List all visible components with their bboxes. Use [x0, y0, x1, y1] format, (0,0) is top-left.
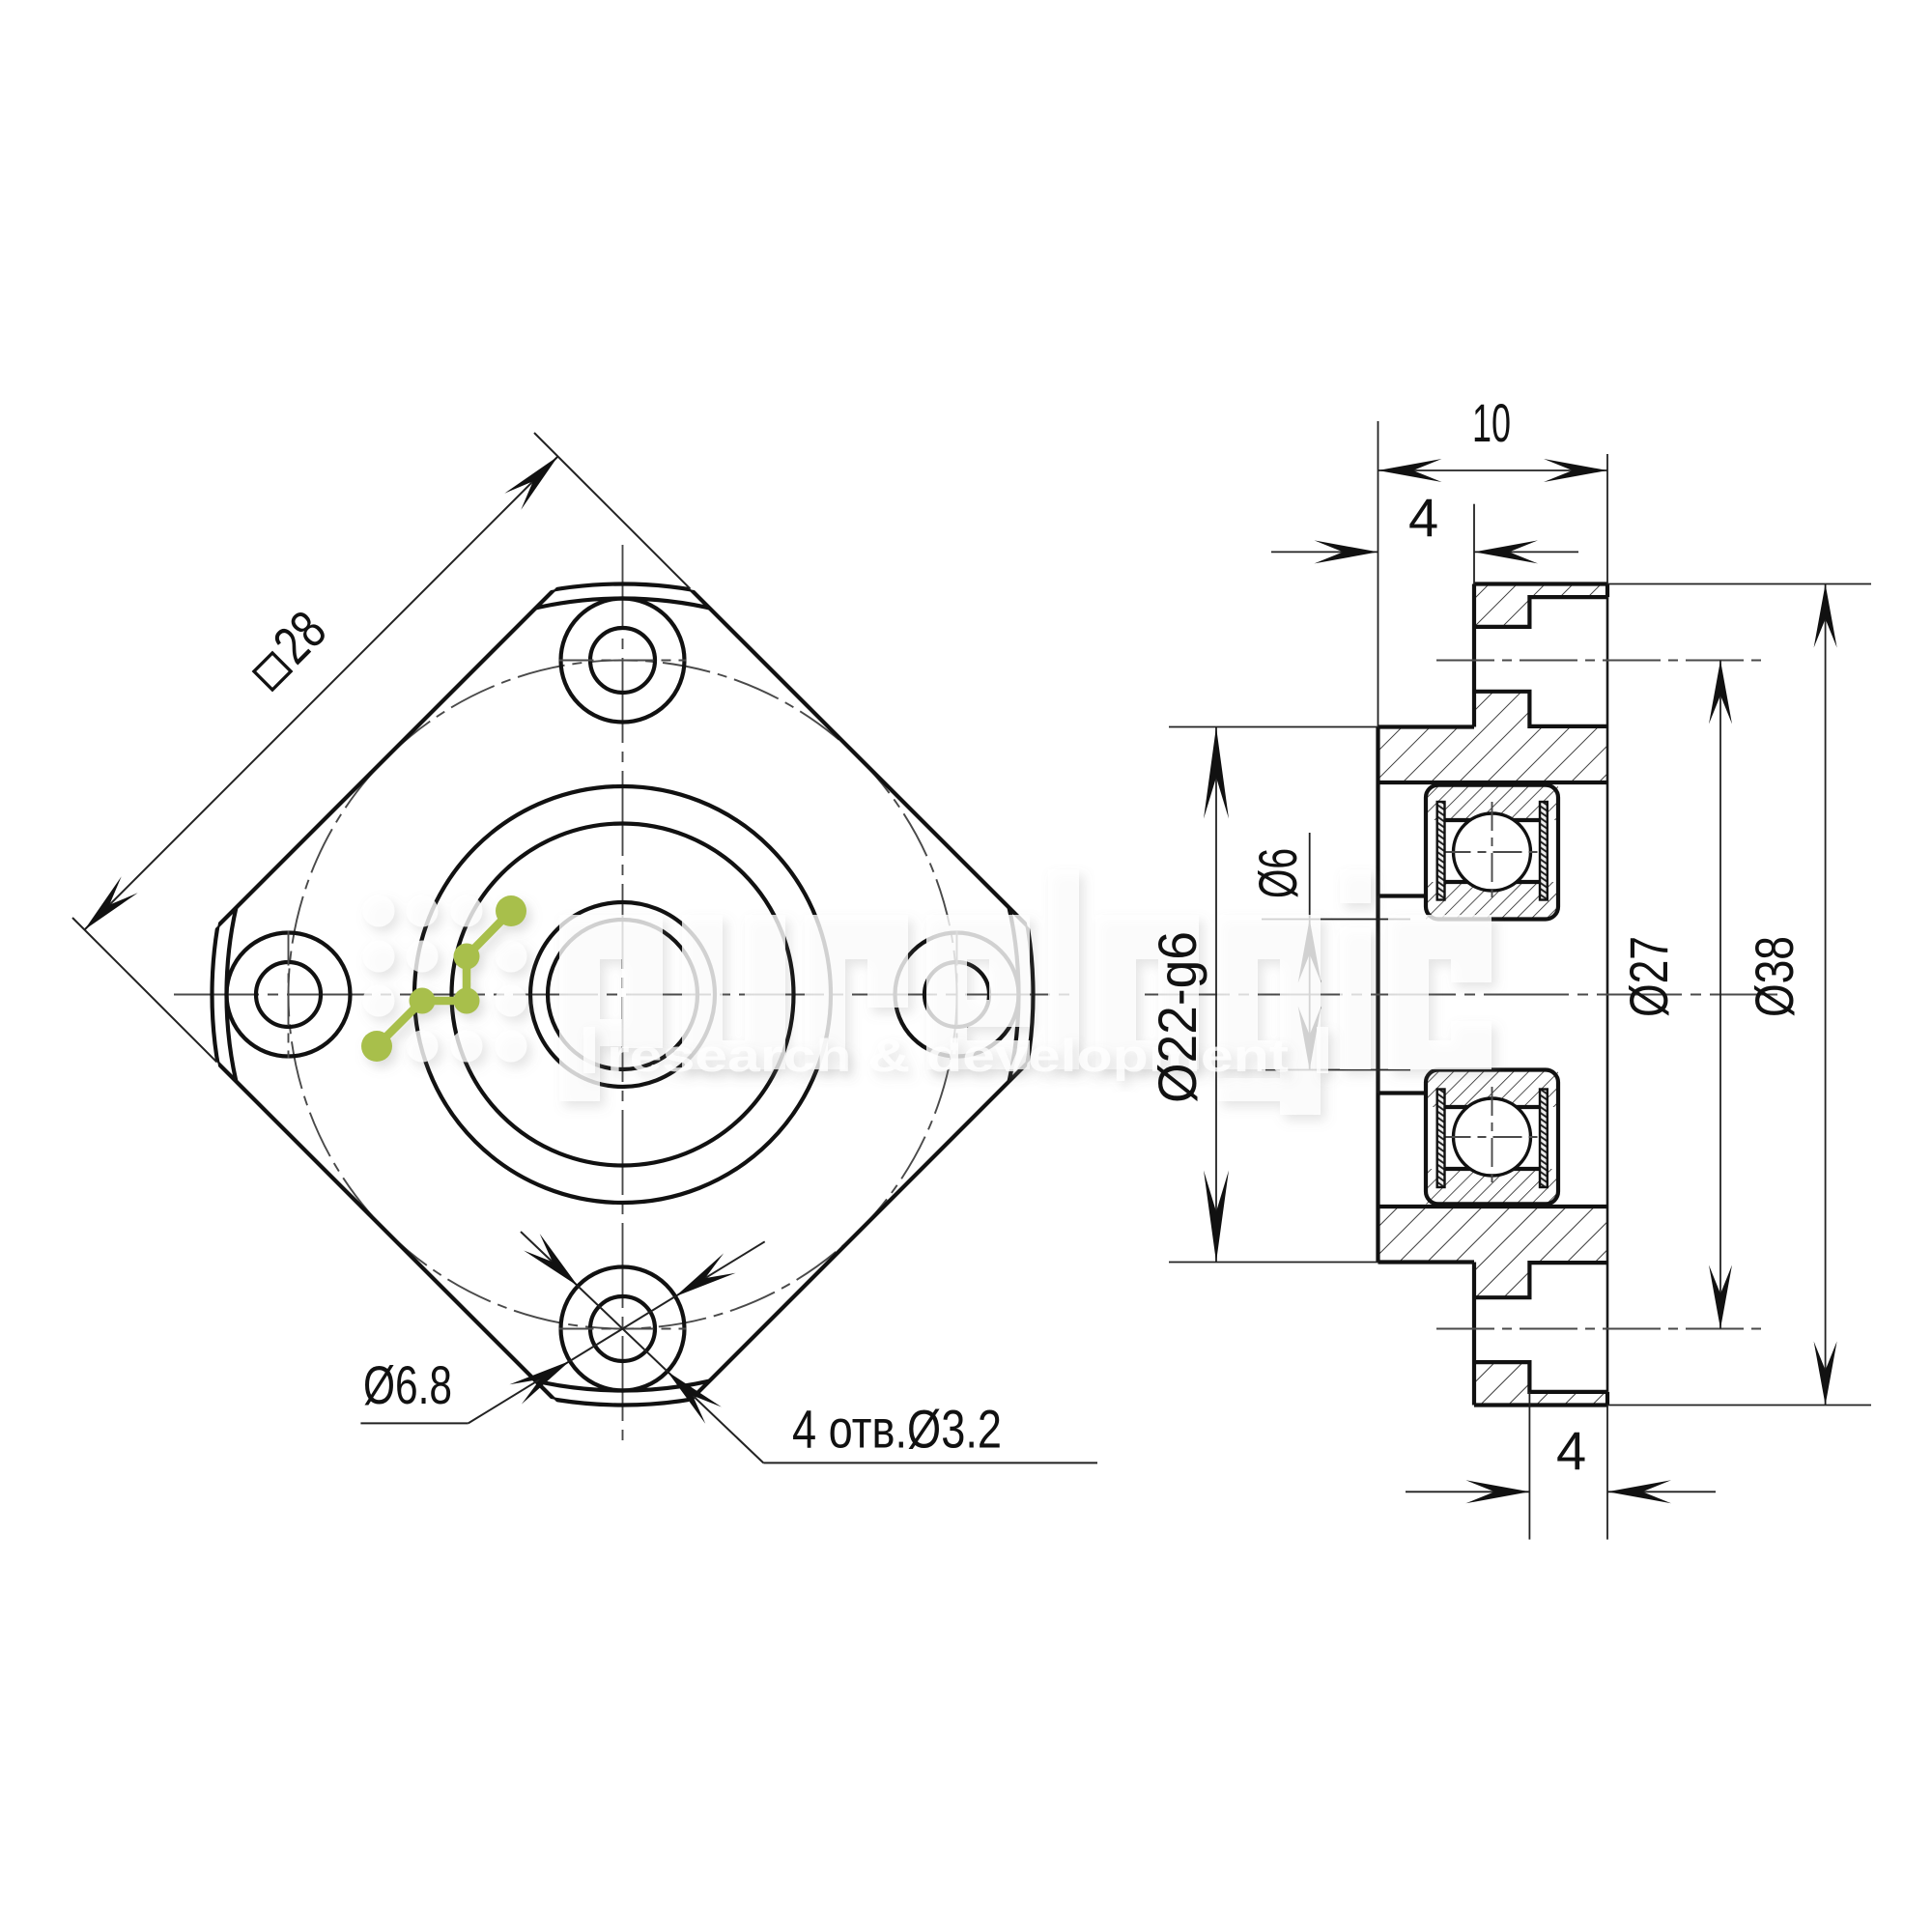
svg-text:10: 10 [1472, 392, 1511, 453]
svg-text:Ø27: Ø27 [1618, 936, 1679, 1017]
svg-text:Ø6.8: Ø6.8 [363, 1354, 452, 1415]
svg-text:Ø38: Ø38 [1744, 936, 1804, 1017]
svg-text:4: 4 [1408, 487, 1438, 548]
svg-text:Ø22-g6: Ø22-g6 [1147, 931, 1207, 1103]
svg-text:4 отв.Ø3.2: 4 отв.Ø3.2 [792, 1398, 1002, 1459]
svg-text:4: 4 [1556, 1420, 1586, 1481]
svg-text:Ø6: Ø6 [1247, 848, 1308, 898]
